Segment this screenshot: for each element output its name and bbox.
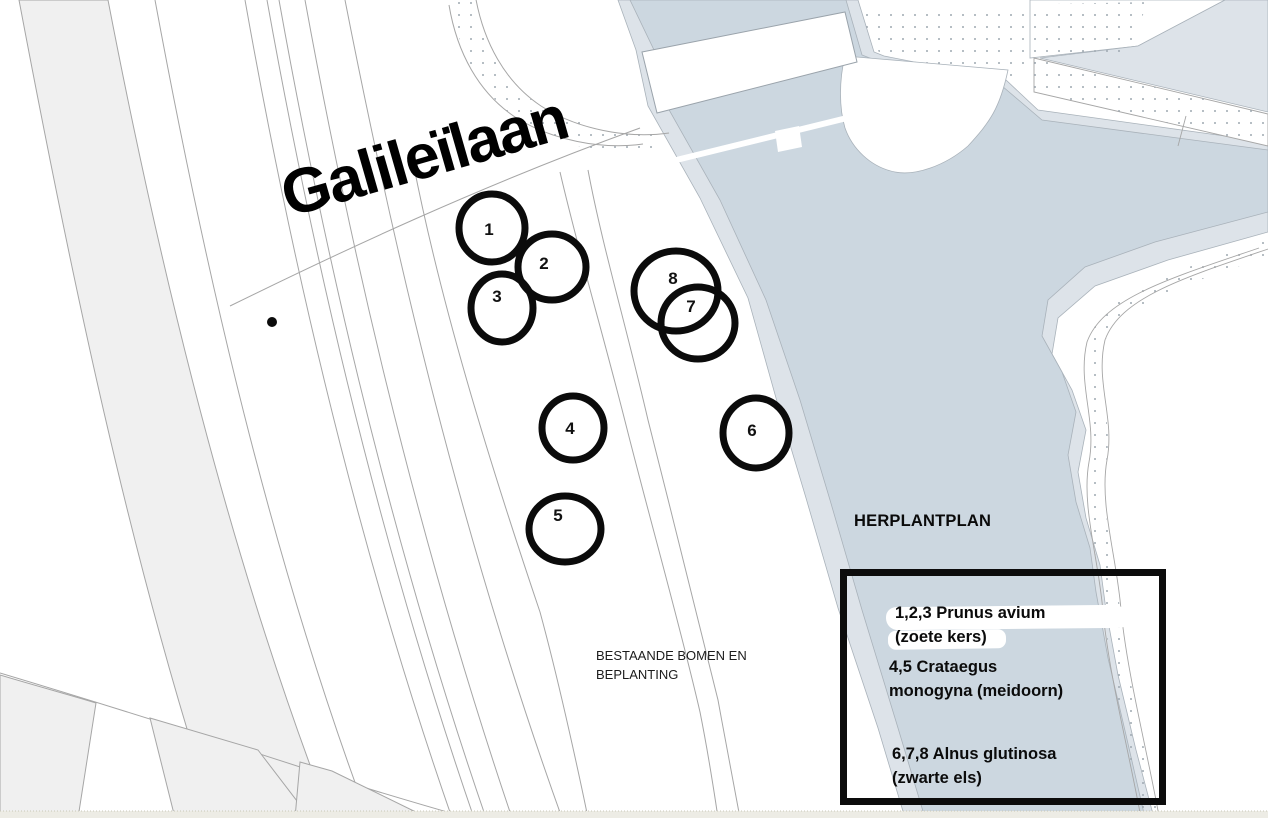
- marker-label-5: 5: [553, 506, 562, 525]
- marker-label-2: 2: [539, 254, 548, 273]
- tree-marker-labels: 1 2 3 4 5 6 7 8: [484, 220, 756, 525]
- street-edge-line: [230, 128, 640, 306]
- herplantplan-map: { "street_label": "Galileïlaan", "annota…: [0, 0, 1268, 818]
- tree-strip-line-right: [588, 170, 740, 818]
- marker-label-7: 7: [686, 297, 695, 316]
- parcel-lines: [0, 0, 740, 818]
- parcel-fill-bottom-3: [295, 762, 428, 818]
- tree-marker-5: [529, 496, 601, 562]
- bottom-strip: [0, 811, 1268, 818]
- marker-label-3: 3: [492, 287, 501, 306]
- parcel-fill-bottom-1: [0, 675, 96, 818]
- marker-label-8: 8: [668, 269, 677, 288]
- base-map: 1 2 3 4 5 6 7 8: [0, 0, 1268, 818]
- marker-label-1: 1: [484, 220, 493, 239]
- tree-marker-3: [471, 274, 533, 342]
- survey-point-dot: [267, 317, 277, 327]
- marker-label-4: 4: [565, 419, 575, 438]
- marker-label-6: 6: [747, 421, 756, 440]
